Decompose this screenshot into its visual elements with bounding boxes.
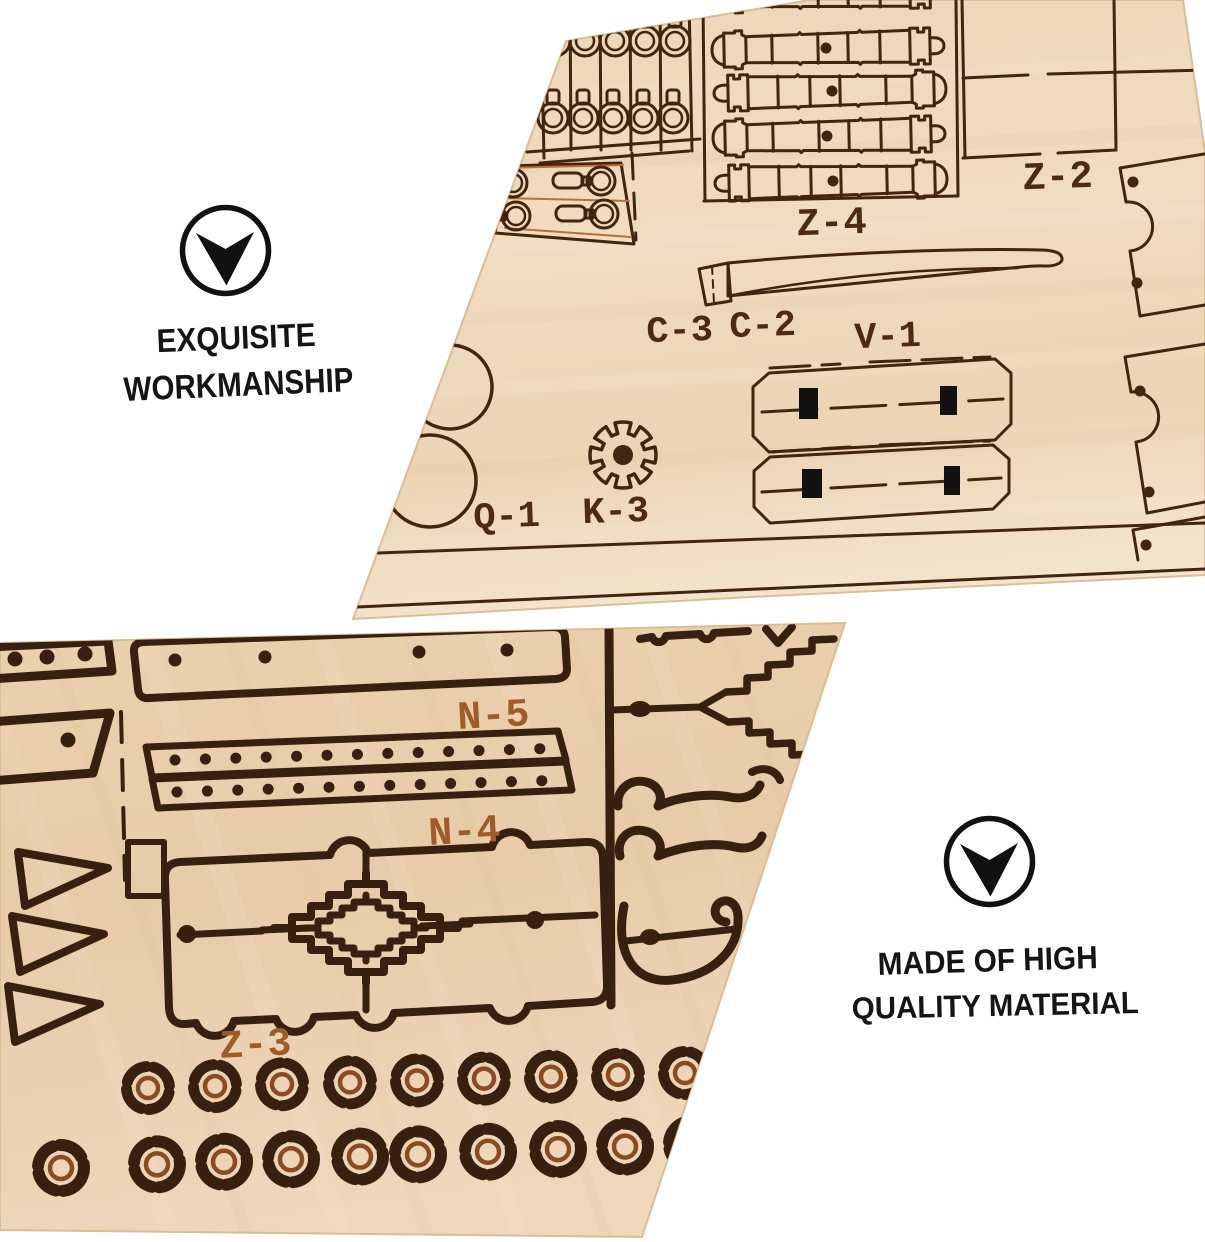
svg-text:V-1: V-1: [854, 316, 922, 360]
svg-text:EXQUISITE: EXQUISITE: [156, 316, 316, 359]
svg-text:MADE OF HIGH: MADE OF HIGH: [877, 939, 1098, 982]
svg-text:Z-2: Z-2: [1022, 155, 1094, 201]
svg-text:C-2: C-2: [729, 305, 797, 349]
svg-text:Z-4: Z-4: [796, 201, 868, 247]
svg-text:Q-1: Q-1: [473, 496, 541, 540]
svg-text:WORKMANSHIP: WORKMANSHIP: [123, 361, 354, 409]
svg-text:N-5: N-5: [456, 693, 530, 742]
svg-text:N-4: N-4: [427, 809, 501, 858]
svg-text:K-3: K-3: [582, 491, 650, 535]
svg-text:QUALITY MATERIAL: QUALITY MATERIAL: [851, 985, 1139, 1026]
svg-text:Z-3: Z-3: [218, 1022, 292, 1071]
svg-text:C-3: C-3: [646, 310, 714, 354]
